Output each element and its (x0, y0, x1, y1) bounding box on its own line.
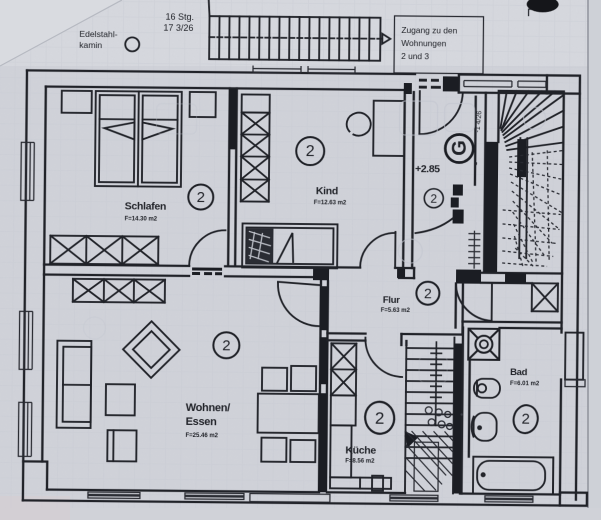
svg-text:G: G (449, 140, 471, 156)
svg-text:Wohnen/: Wohnen/ (186, 402, 230, 414)
svg-text:F=8.56 m2: F=8.56 m2 (345, 458, 375, 464)
svg-text:F=6.01 m2: F=6.01 m2 (510, 381, 540, 387)
svg-text:17 3/26: 17 3/26 (163, 23, 193, 33)
svg-text:2 und 3: 2 und 3 (401, 51, 429, 61)
svg-text:kamin: kamin (79, 40, 102, 50)
svg-text:2: 2 (521, 411, 530, 428)
svg-text:2: 2 (306, 143, 315, 160)
svg-text:Zugang zu den: Zugang zu den (401, 25, 457, 36)
svg-text:Küche: Küche (345, 444, 376, 456)
svg-text:2: 2 (197, 189, 206, 206)
svg-text:2: 2 (430, 192, 437, 206)
svg-text:2: 2 (424, 285, 432, 301)
svg-text:F=14.30 m2: F=14.30 m2 (125, 216, 158, 222)
svg-text:2: 2 (375, 409, 385, 428)
svg-text:F=5.63 m2: F=5.63 m2 (381, 308, 411, 314)
svg-text:F=12.63 m2: F=12.63 m2 (314, 200, 347, 206)
svg-text:Essen: Essen (186, 416, 218, 428)
svg-text:Wohnungen: Wohnungen (401, 38, 446, 48)
svg-text:Bad: Bad (510, 367, 528, 378)
svg-text:Schlafen: Schlafen (125, 200, 166, 212)
svg-text:Kind: Kind (316, 185, 338, 197)
svg-text:Flur: Flur (383, 295, 400, 306)
svg-text:+2.85: +2.85 (415, 163, 440, 175)
svg-text:2: 2 (222, 337, 231, 354)
svg-text:F=25.46 m2: F=25.46 m2 (185, 433, 218, 439)
svg-text:Edelstahl-: Edelstahl- (79, 29, 117, 39)
svg-text:16 Stg.: 16 Stg. (165, 12, 194, 22)
